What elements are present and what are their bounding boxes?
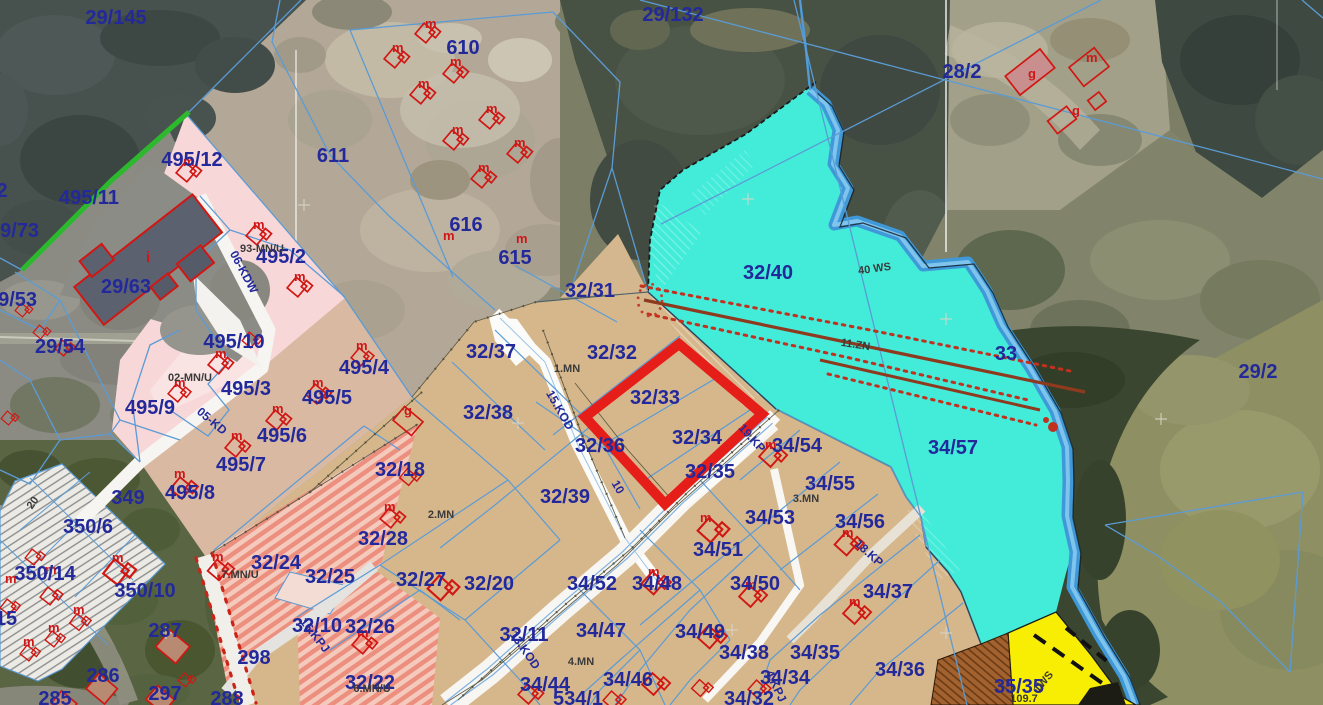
svg-text:32/37: 32/37 bbox=[466, 341, 516, 363]
svg-text:m: m bbox=[516, 231, 528, 246]
svg-text:g: g bbox=[1028, 66, 1036, 81]
svg-text:350/10: 350/10 bbox=[114, 580, 175, 602]
svg-text:285: 285 bbox=[38, 688, 71, 705]
svg-text:32/32: 32/32 bbox=[587, 342, 637, 364]
svg-text:29/54: 29/54 bbox=[35, 336, 86, 358]
svg-text:93-MN/U: 93-MN/U bbox=[240, 243, 284, 255]
svg-text:32/20: 32/20 bbox=[464, 573, 514, 595]
svg-text:298: 298 bbox=[237, 647, 270, 669]
svg-text:34/37: 34/37 bbox=[863, 581, 913, 603]
svg-text:34/55: 34/55 bbox=[805, 473, 855, 495]
svg-text:34/38: 34/38 bbox=[719, 642, 769, 664]
svg-text:02-MN/U: 02-MN/U bbox=[168, 372, 212, 384]
svg-text:m: m bbox=[1086, 50, 1098, 65]
svg-text:534/1: 534/1 bbox=[553, 688, 603, 705]
svg-text:32/36: 32/36 bbox=[575, 435, 625, 457]
svg-text:29/73: 29/73 bbox=[0, 220, 39, 242]
svg-text:32/34: 32/34 bbox=[672, 427, 723, 449]
svg-text:m: m bbox=[212, 549, 224, 564]
svg-text:495/3: 495/3 bbox=[221, 378, 271, 400]
svg-text:1.MN: 1.MN bbox=[554, 363, 580, 375]
svg-text:109.7: 109.7 bbox=[1010, 693, 1038, 705]
svg-text:34/54: 34/54 bbox=[772, 435, 823, 457]
svg-text:m: m bbox=[514, 135, 526, 150]
svg-text:7.MN/U: 7.MN/U bbox=[221, 569, 258, 581]
svg-text:34/51: 34/51 bbox=[693, 539, 743, 561]
svg-text:495/6: 495/6 bbox=[257, 425, 307, 447]
svg-text:32/39: 32/39 bbox=[540, 486, 590, 508]
svg-text:34/32: 34/32 bbox=[724, 688, 774, 705]
svg-text:m: m bbox=[73, 602, 85, 617]
svg-text:495/7: 495/7 bbox=[216, 454, 266, 476]
svg-text:34/47: 34/47 bbox=[576, 620, 626, 642]
svg-text:32/18: 32/18 bbox=[375, 459, 425, 481]
svg-text:34/35: 34/35 bbox=[790, 642, 840, 664]
svg-text:34/49: 34/49 bbox=[675, 621, 725, 643]
svg-text:350/6: 350/6 bbox=[63, 516, 113, 538]
svg-text:34/56: 34/56 bbox=[835, 511, 885, 533]
svg-text:28/2: 28/2 bbox=[943, 61, 982, 83]
svg-text:495/9: 495/9 bbox=[125, 397, 175, 419]
svg-text:m: m bbox=[48, 620, 60, 635]
svg-text:29/132: 29/132 bbox=[642, 4, 703, 26]
svg-text:297: 297 bbox=[148, 683, 181, 705]
svg-text:4.MN: 4.MN bbox=[568, 656, 594, 668]
svg-text:495/10: 495/10 bbox=[203, 331, 264, 353]
svg-text:495/12: 495/12 bbox=[161, 149, 222, 171]
svg-text:616: 616 bbox=[449, 214, 482, 236]
svg-text:32/35: 32/35 bbox=[685, 461, 735, 483]
svg-text:34/36: 34/36 bbox=[875, 659, 925, 681]
svg-text:349: 349 bbox=[111, 487, 144, 509]
svg-text:34/48: 34/48 bbox=[632, 573, 682, 595]
svg-text:29/53: 29/53 bbox=[0, 289, 37, 311]
svg-text:29/63: 29/63 bbox=[101, 276, 151, 298]
svg-text:m: m bbox=[478, 160, 490, 175]
svg-text:15: 15 bbox=[0, 608, 17, 630]
svg-text:350/14: 350/14 bbox=[14, 563, 76, 585]
svg-text:495/11: 495/11 bbox=[59, 187, 119, 209]
svg-text:33: 33 bbox=[995, 343, 1017, 365]
svg-text:m: m bbox=[452, 122, 464, 137]
svg-text:34/57: 34/57 bbox=[928, 437, 978, 459]
svg-text:m: m bbox=[849, 594, 861, 609]
svg-text:6.MN/U: 6.MN/U bbox=[353, 683, 390, 695]
svg-text:32/27: 32/27 bbox=[396, 569, 446, 591]
svg-text:495/8: 495/8 bbox=[165, 482, 215, 504]
svg-text:32/33: 32/33 bbox=[630, 387, 680, 409]
svg-text:m: m bbox=[486, 101, 498, 116]
svg-text:34/52: 34/52 bbox=[567, 573, 617, 595]
svg-text:32/31: 32/31 bbox=[565, 280, 615, 302]
svg-text:610: 610 bbox=[446, 37, 479, 59]
svg-text:34/46: 34/46 bbox=[603, 669, 653, 691]
svg-text:m: m bbox=[392, 40, 404, 55]
svg-text:288: 288 bbox=[210, 688, 243, 705]
svg-text:m: m bbox=[112, 550, 124, 565]
svg-text:615: 615 bbox=[498, 247, 531, 269]
svg-text:32/40: 32/40 bbox=[743, 262, 793, 284]
svg-text:m: m bbox=[272, 401, 284, 416]
svg-text:m: m bbox=[253, 217, 265, 232]
svg-text:m: m bbox=[356, 338, 368, 353]
svg-text:29/2: 29/2 bbox=[1239, 361, 1278, 383]
svg-text:34/53: 34/53 bbox=[745, 507, 795, 529]
svg-text:29/145: 29/145 bbox=[85, 7, 146, 29]
svg-text:i: i bbox=[146, 249, 150, 266]
svg-text:m: m bbox=[23, 634, 35, 649]
svg-text:32/28: 32/28 bbox=[358, 528, 408, 550]
svg-text:g: g bbox=[1072, 103, 1080, 118]
svg-text:g: g bbox=[404, 403, 412, 418]
svg-text:32/25: 32/25 bbox=[305, 566, 355, 588]
svg-text:2: 2 bbox=[0, 180, 8, 202]
svg-text:m: m bbox=[294, 269, 306, 284]
svg-text:2.MN: 2.MN bbox=[428, 509, 454, 521]
svg-text:287: 287 bbox=[148, 620, 181, 642]
svg-text:34/50: 34/50 bbox=[730, 573, 780, 595]
svg-text:m: m bbox=[418, 76, 430, 91]
svg-text:32/26: 32/26 bbox=[345, 616, 395, 638]
svg-text:495/5: 495/5 bbox=[302, 387, 352, 409]
svg-text:m: m bbox=[231, 428, 243, 443]
svg-text:286: 286 bbox=[86, 665, 119, 687]
svg-text:611: 611 bbox=[317, 145, 349, 167]
svg-text:3.MN: 3.MN bbox=[793, 493, 819, 505]
svg-text:m: m bbox=[700, 510, 712, 525]
svg-text:32/38: 32/38 bbox=[463, 402, 513, 424]
svg-text:m: m bbox=[384, 499, 396, 514]
svg-text:m: m bbox=[174, 466, 186, 481]
svg-text:495/4: 495/4 bbox=[339, 357, 390, 379]
svg-text:m: m bbox=[425, 16, 437, 31]
